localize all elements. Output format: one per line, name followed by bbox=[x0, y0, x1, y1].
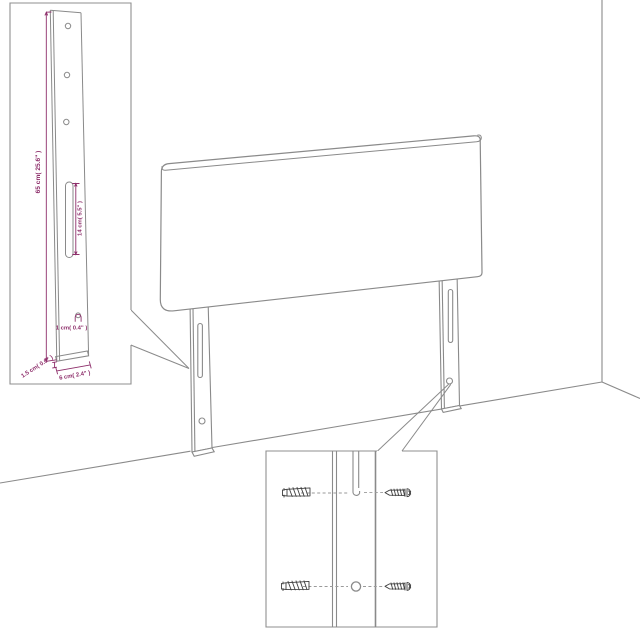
callout-lines-leg-detail bbox=[131, 310, 189, 369]
hardware-inset bbox=[266, 451, 437, 627]
right-leg-slot bbox=[448, 290, 452, 343]
dimension-label-hole-diameter: 1 cm( 0.4" ) bbox=[56, 326, 88, 332]
detail-leg-hole-2 bbox=[64, 72, 69, 77]
floor-line-right bbox=[602, 382, 640, 399]
detail-leg-hole-3 bbox=[64, 119, 69, 124]
left-leg-slot bbox=[198, 324, 203, 378]
detail-leg-hole-1 bbox=[65, 23, 70, 28]
left-leg-hole bbox=[199, 418, 205, 424]
detail-leg-bottom-hole bbox=[76, 313, 81, 318]
headboard-outline bbox=[160, 136, 482, 311]
dimension-label-slot-length: 14 cm( 5.5" ) bbox=[78, 201, 84, 236]
floor-line-left-a bbox=[0, 451, 191, 483]
hardware-leg-hole bbox=[351, 582, 360, 591]
right-leg bbox=[439, 270, 461, 412]
left-leg bbox=[190, 298, 214, 456]
detail-leg-slot bbox=[66, 182, 74, 258]
hardware-inset-box bbox=[266, 451, 437, 627]
assembly-diagram: 65 cm( 25.6" ) 14 cm( 5.5" ) 1 cm( 0.4" … bbox=[0, 0, 640, 640]
dimension-label-height: 65 cm( 25.6" ) bbox=[35, 151, 42, 194]
floor-line-left-b bbox=[213, 382, 603, 448]
leg-detail-inset: 65 cm( 25.6" ) 14 cm( 5.5" ) 1 cm( 0.4" … bbox=[10, 3, 131, 384]
right-leg-hole bbox=[447, 378, 453, 384]
headboard-panel bbox=[160, 135, 482, 311]
